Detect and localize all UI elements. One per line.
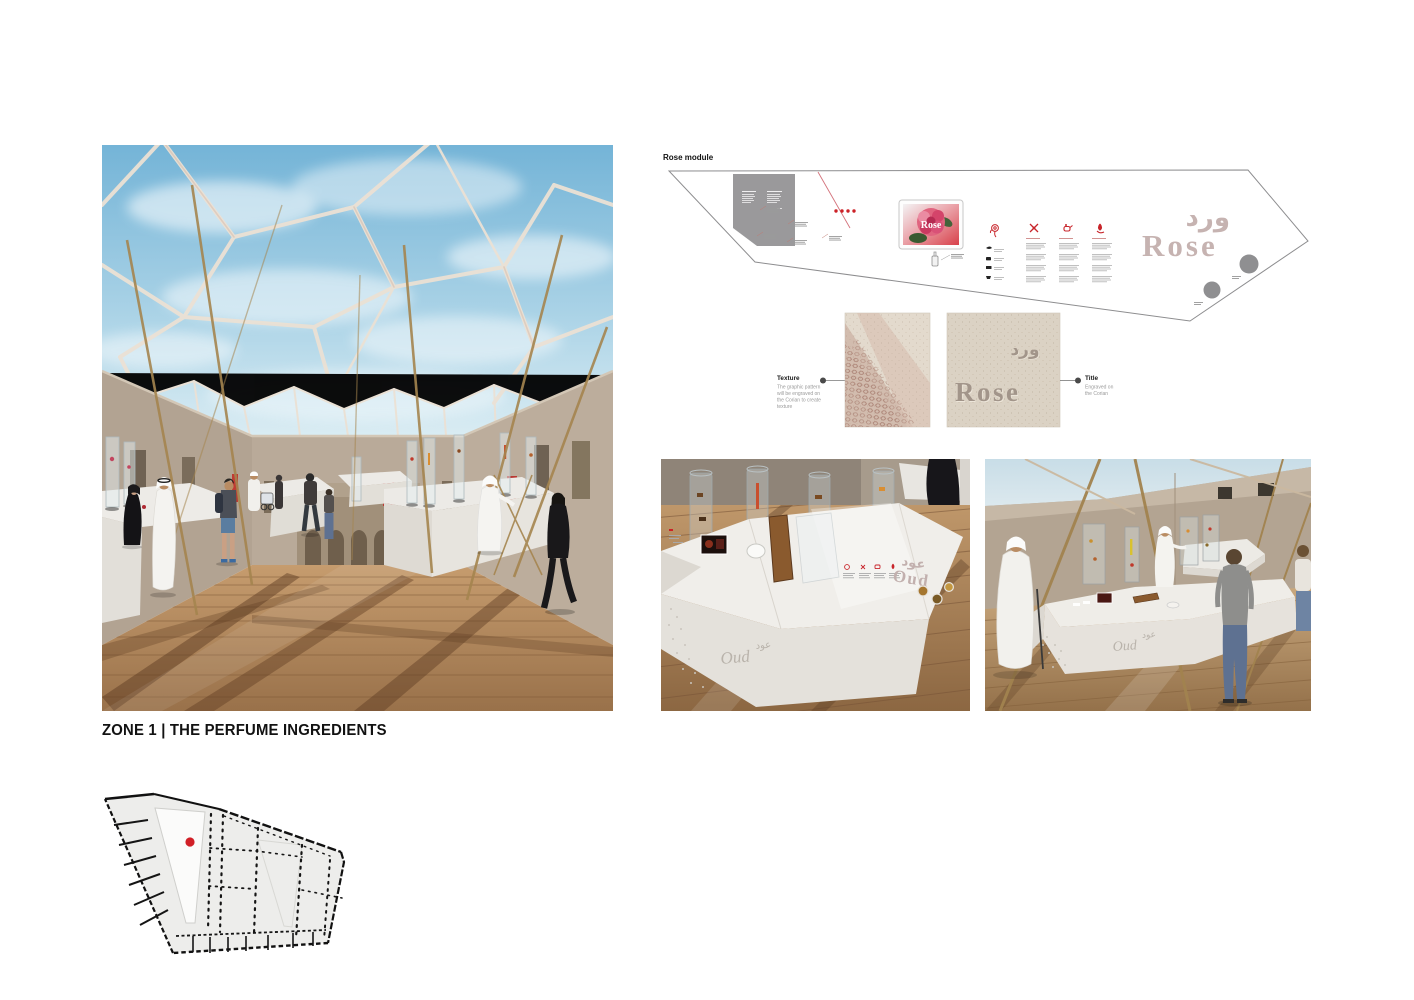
visitor-man-jeans <box>324 489 334 539</box>
floor-plan <box>98 790 348 965</box>
plan-footprint <box>105 794 344 953</box>
svg-text:Oud: Oud <box>1112 638 1138 655</box>
oud-courtyard-render: Oud عود <box>985 459 1311 711</box>
screen-rose-title: Rose <box>921 220 942 231</box>
engraved-english: Rose <box>955 377 1021 407</box>
svg-text:texture: texture <box>777 404 793 410</box>
rose-photo-screen: Rose <box>899 200 963 249</box>
title-callout-dot <box>1075 378 1081 384</box>
wall-window <box>1218 487 1232 499</box>
detail-circle-2 <box>1204 282 1221 299</box>
zone-title: ZONE 1 | THE PERFUME INGREDIENTS <box>102 722 387 740</box>
svg-text:The graphic pattern: The graphic pattern <box>777 385 821 391</box>
svg-text:عود: عود <box>755 640 771 652</box>
module-title-english: Rose <box>1142 228 1218 263</box>
zone-marker-dot <box>185 837 194 846</box>
detail-circle-1 <box>1240 255 1259 274</box>
svg-text:the Corian: the Corian <box>1085 391 1108 397</box>
svg-text:the Corian to create: the Corian to create <box>777 398 821 404</box>
title-label: Title <box>1085 375 1098 382</box>
svg-text:Engraved on: Engraved on <box>1085 385 1114 391</box>
corian-detail-section: Texture The graphic pattern will be engr… <box>755 310 1125 432</box>
exhibit-bowl <box>747 544 765 558</box>
engraved-arabic: ورد <box>1010 340 1039 360</box>
oud-module-closeup-render: عود Oud Oud عود <box>661 459 970 711</box>
rose-module-label: Rose module <box>663 153 713 162</box>
texture-sample-pattern <box>845 313 930 427</box>
texture-callout-dot <box>820 378 826 384</box>
texture-sample-title: ورد ورد Rose Rose <box>947 313 1060 427</box>
presentation-board: { "zone": { "title": "ZONE 1 | THE PERFU… <box>0 0 1414 1000</box>
svg-text:will be engraved on: will be engraved on <box>777 391 820 397</box>
title-annotation: Title Engraved on the Corian <box>1060 375 1114 397</box>
zone1-interior-render <box>102 145 613 711</box>
texture-label: Texture <box>777 375 800 382</box>
texture-annotation: Texture The graphic pattern will be engr… <box>777 375 852 410</box>
rose-module-diagram: Rose <box>660 164 1312 330</box>
svg-text:Oud: Oud <box>720 646 751 668</box>
svg-text:عود: عود <box>1142 630 1157 641</box>
